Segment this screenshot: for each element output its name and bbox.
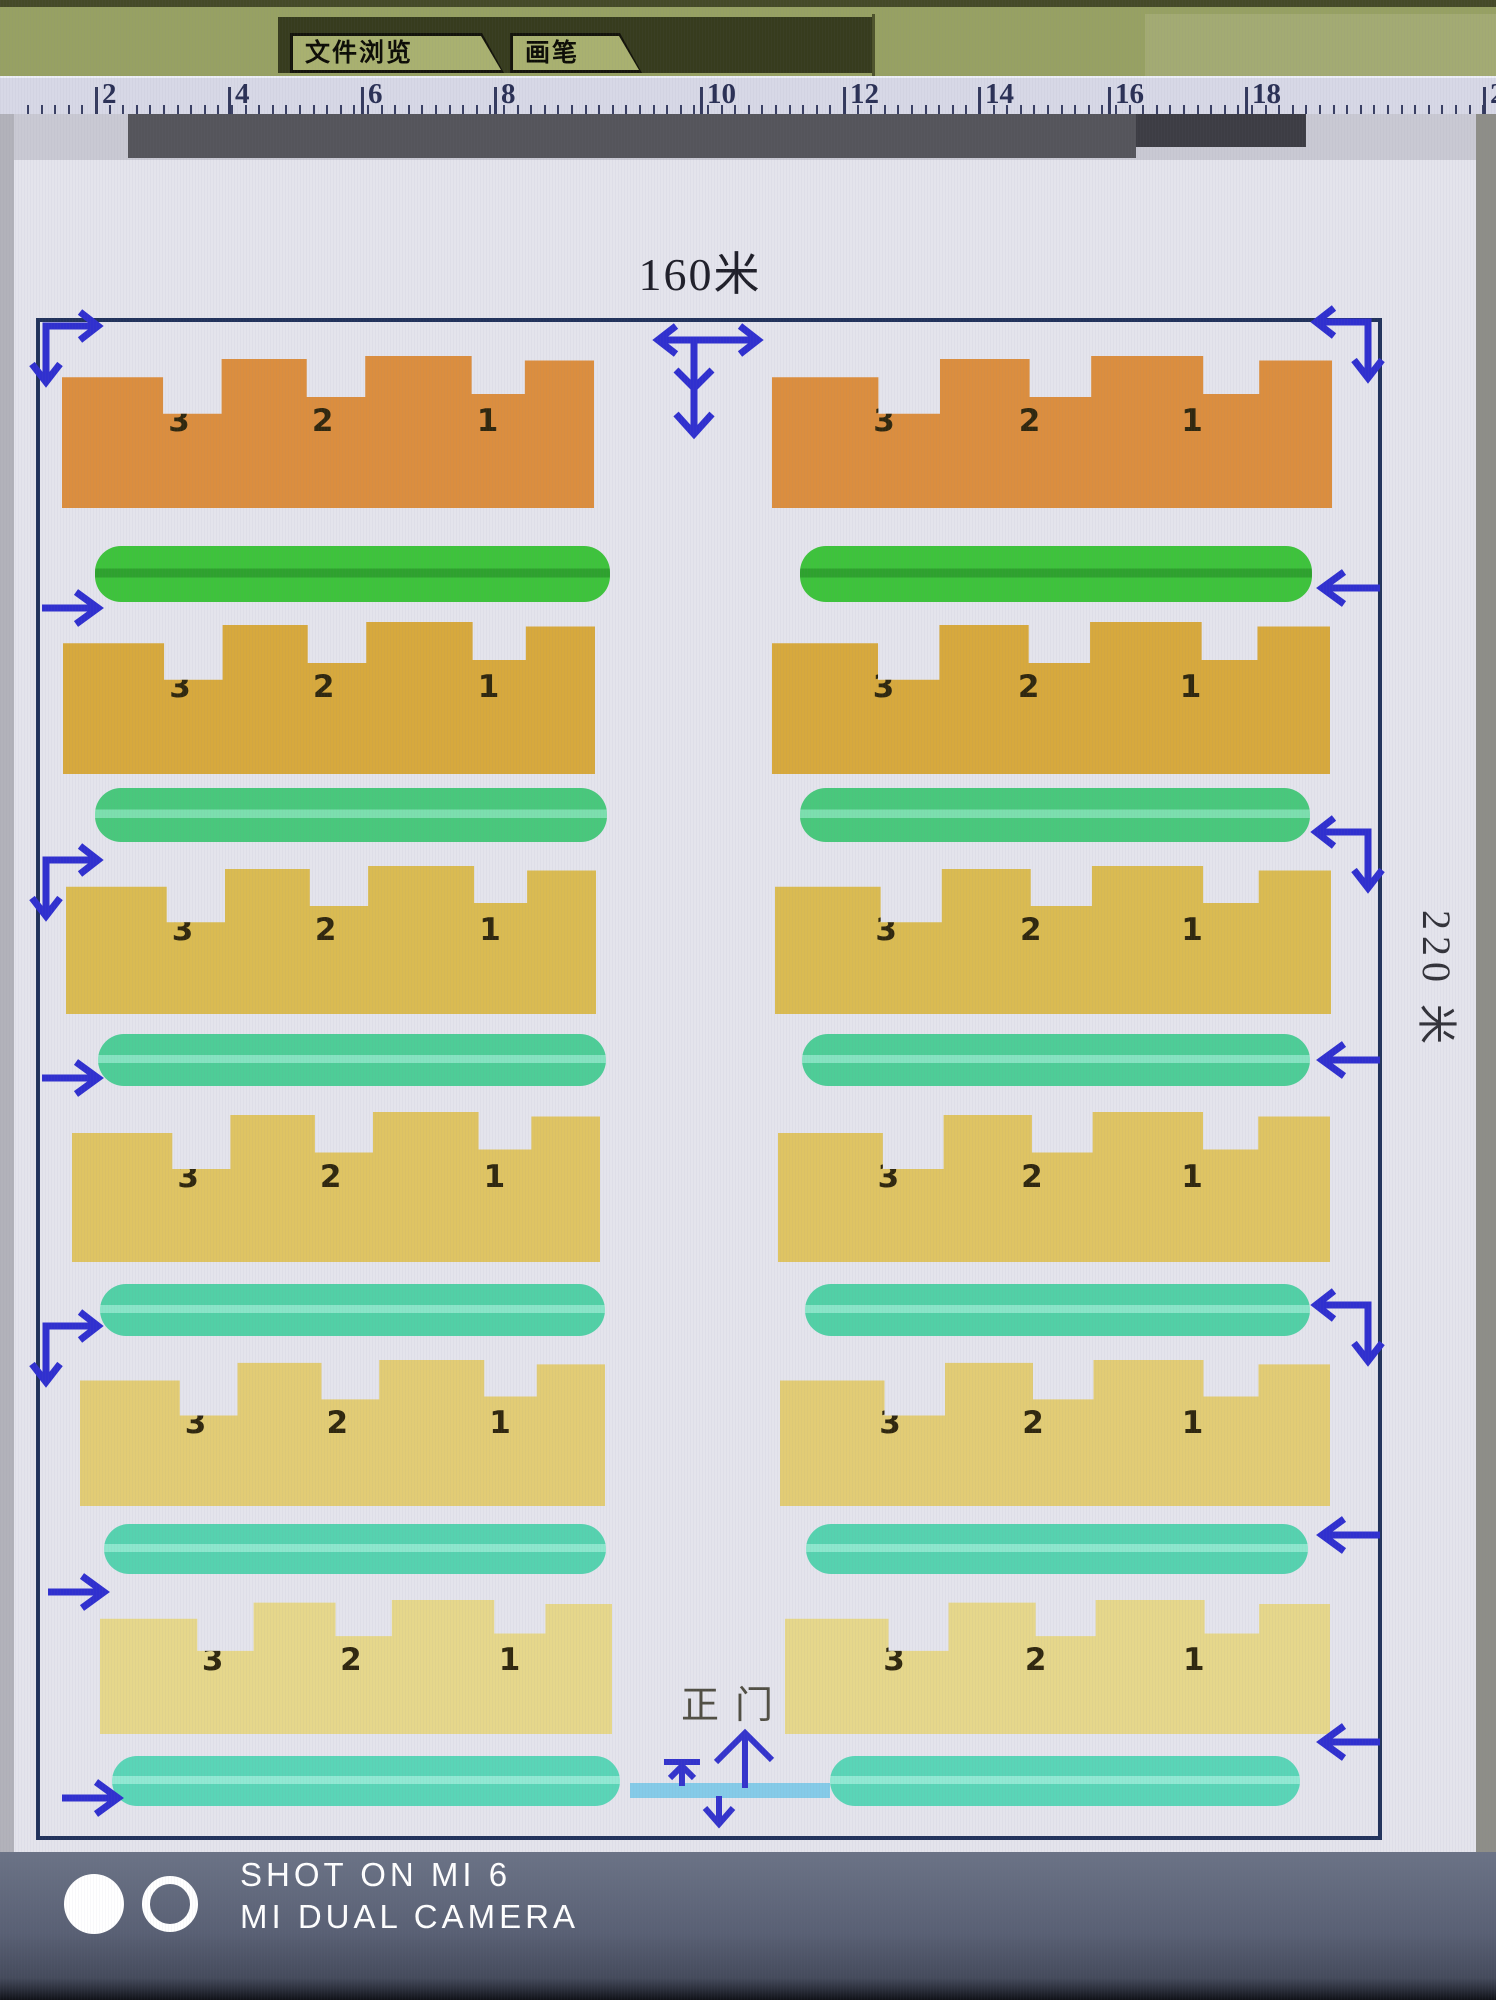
ruler-tick <box>421 105 423 114</box>
unit-number: 2 <box>1021 1159 1043 1195</box>
ruler-tick <box>925 105 927 114</box>
unit-number: 2 <box>312 403 334 439</box>
ruler-tick <box>408 105 410 114</box>
ruler-major-tick <box>1108 87 1111 114</box>
ruler-tick <box>190 105 192 114</box>
toolbar-divider <box>872 14 875 83</box>
ruler-tick <box>1428 105 1430 114</box>
ruler-tick <box>1414 105 1416 114</box>
unit-number: 2 <box>326 1405 348 1441</box>
unit-number: 1 <box>489 1405 511 1441</box>
ruler-tick <box>163 105 165 114</box>
unit-number: 2 <box>313 669 335 705</box>
ruler-tick <box>54 105 56 114</box>
ruler-tick <box>299 105 301 114</box>
canvas-shadow-band <box>128 114 1136 158</box>
ruler-tick <box>1224 105 1226 114</box>
ruler-tick <box>1210 105 1212 114</box>
ruler-tick <box>1469 105 1471 114</box>
ruler-label: 18 <box>1252 78 1281 111</box>
green-belt-row-3-left <box>98 1034 606 1086</box>
green-belt-row-1-left <box>95 546 610 602</box>
ruler-tick <box>1319 105 1321 114</box>
ruler-tick <box>571 105 573 114</box>
ruler-tick <box>1183 105 1185 114</box>
unit-number: 1 <box>1180 669 1202 705</box>
unit-number: 1 <box>1181 1159 1203 1195</box>
unit-number: 1 <box>1181 403 1203 439</box>
ruler-tick <box>761 105 763 114</box>
green-belt-row-4-right <box>805 1284 1310 1336</box>
ruler-tick <box>1387 105 1389 114</box>
ruler-tick <box>1156 105 1158 114</box>
ruler-major-tick <box>843 87 846 114</box>
ruler-tick <box>639 105 641 114</box>
unit-number: 1 <box>499 1642 521 1678</box>
ruler-tick <box>1088 105 1090 114</box>
ruler-label: 16 <box>1115 78 1144 111</box>
watermark-ring-icon <box>142 1876 198 1932</box>
unit-number: 2 <box>1020 912 1042 948</box>
ruler-tick <box>1033 105 1035 114</box>
unit-number: 1 <box>484 1159 506 1195</box>
width-dimension-label: 160米 <box>560 238 840 304</box>
ruler-tick <box>816 105 818 114</box>
ruler-tick <box>449 105 451 114</box>
ruler-tick <box>666 105 668 114</box>
ruler-tick <box>285 105 287 114</box>
ruler-tick <box>653 105 655 114</box>
ruler-label: 2 <box>1490 78 1496 111</box>
ruler-major-tick <box>978 87 981 114</box>
ruler-tick <box>965 105 967 114</box>
ruler-major-tick <box>494 87 497 114</box>
unit-number: 1 <box>478 669 500 705</box>
ruler-label: 12 <box>850 78 879 111</box>
ruler-tick <box>217 105 219 114</box>
ruler-tick <box>41 105 43 114</box>
unit-number: 1 <box>479 912 501 948</box>
canvas-dark-block <box>1136 114 1306 147</box>
ruler-tick <box>1360 105 1362 114</box>
screen-left-edge <box>0 114 14 1852</box>
ruler-tick <box>1047 105 1049 114</box>
ruler-tick <box>177 105 179 114</box>
ruler-tick <box>1237 105 1239 114</box>
ruler-major-tick <box>1245 87 1248 114</box>
horizontal-ruler: 246810121416182 <box>0 76 1496 114</box>
ruler-tick <box>680 105 682 114</box>
ruler-tick <box>693 105 695 114</box>
green-belt-row-4-left <box>100 1284 605 1336</box>
ruler-tick <box>489 105 491 114</box>
unit-number: 2 <box>1019 403 1041 439</box>
ruler-tick <box>340 105 342 114</box>
toolbar: 文件浏览 画笔 <box>0 0 1496 76</box>
green-belt-row-3-right <box>802 1034 1310 1086</box>
ruler-tick <box>27 105 29 114</box>
ruler-tick <box>1305 105 1307 114</box>
green-belt-row-2-left <box>95 788 607 842</box>
ruler-major-tick <box>700 87 703 114</box>
screen-photo: { "window": { "tabs": [ {"label": "文件浏览"… <box>0 0 1496 2000</box>
green-belt-row-5-left <box>104 1524 606 1574</box>
ruler-major-tick <box>1483 87 1486 114</box>
ruler-tick <box>353 105 355 114</box>
ruler-tick <box>1333 105 1335 114</box>
ruler-tick <box>1101 105 1103 114</box>
green-belt-row-1-right <box>800 546 1312 602</box>
ruler-tick <box>775 105 777 114</box>
ruler-tick <box>1401 105 1403 114</box>
ruler-tick <box>313 105 315 114</box>
ruler-tick <box>204 105 206 114</box>
ruler-tick <box>598 105 600 114</box>
ruler-tick <box>1455 105 1457 114</box>
ruler-tick <box>612 105 614 114</box>
ruler-tick <box>1020 105 1022 114</box>
unit-number: 2 <box>340 1642 362 1678</box>
watermark-line1: SHOT ON MI 6 <box>240 1856 511 1894</box>
ruler-label: 4 <box>235 78 250 111</box>
phone-photo-bezel: SHOT ON MI 6 MI DUAL CAMERA <box>0 1852 1496 2000</box>
ruler-tick <box>1197 105 1199 114</box>
unit-number: 2 <box>315 912 337 948</box>
ruler-tick <box>394 105 396 114</box>
ruler-tick <box>829 105 831 114</box>
ruler-tick <box>476 105 478 114</box>
ruler-tick <box>462 105 464 114</box>
ruler-major-tick <box>228 87 231 114</box>
ruler-tick <box>544 105 546 114</box>
ruler-label: 14 <box>985 78 1014 111</box>
ruler-tick <box>938 105 940 114</box>
unit-number: 1 <box>1183 1642 1205 1678</box>
ruler-tick <box>1074 105 1076 114</box>
ruler-tick <box>149 105 151 114</box>
ruler-tick <box>789 105 791 114</box>
unit-number: 2 <box>1022 1405 1044 1441</box>
ruler-tick <box>884 105 886 114</box>
height-dimension-label: 220 米 <box>1388 880 1492 1080</box>
ruler-tick <box>530 105 532 114</box>
ruler-tick <box>1169 105 1171 114</box>
unit-number: 1 <box>1181 912 1203 948</box>
ruler-tick <box>557 105 559 114</box>
ruler-tick <box>81 105 83 114</box>
ruler-tick <box>911 105 913 114</box>
ruler-tick <box>748 105 750 114</box>
ruler-tick <box>585 105 587 114</box>
ruler-tick <box>897 105 899 114</box>
ruler-major-tick <box>95 87 98 114</box>
ruler-tick <box>1373 105 1375 114</box>
watermark-line2: MI DUAL CAMERA <box>240 1898 579 1936</box>
gate-entry-exit-arrows-icon <box>600 1688 860 1848</box>
ruler-tick <box>952 105 954 114</box>
ruler-tick <box>1346 105 1348 114</box>
unit-number: 1 <box>477 403 499 439</box>
watermark-dot-icon <box>64 1874 124 1934</box>
ruler-tick <box>68 105 70 114</box>
ruler-tick <box>802 105 804 114</box>
unit-number: 1 <box>1182 1405 1204 1441</box>
unit-number: 2 <box>320 1159 342 1195</box>
green-belt-row-2-right <box>800 788 1310 842</box>
canvas-top-band <box>0 114 1496 160</box>
toolbar-right-panel <box>1145 14 1496 83</box>
ruler-tick <box>435 105 437 114</box>
ruler-tick <box>136 105 138 114</box>
ruler-tick <box>326 105 328 114</box>
green-belt-row-6-right <box>830 1756 1300 1806</box>
ruler-label: 6 <box>368 78 383 111</box>
green-belt-row-6-left <box>112 1756 620 1806</box>
ruler-tick <box>272 105 274 114</box>
ruler-tick <box>625 105 627 114</box>
ruler-label: 2 <box>102 78 117 111</box>
ruler-tick <box>517 105 519 114</box>
ruler-tick <box>122 105 124 114</box>
ruler-label: 8 <box>501 78 516 111</box>
ruler-label: 10 <box>707 78 736 111</box>
tab-file-browser[interactable]: 文件浏览 <box>290 33 504 73</box>
tab-brush[interactable]: 画笔 <box>510 33 642 73</box>
ruler-tick <box>1061 105 1063 114</box>
unit-number: 2 <box>1025 1642 1047 1678</box>
unit-number: 2 <box>1018 669 1040 705</box>
ruler-major-tick <box>361 87 364 114</box>
ruler-tick <box>258 105 260 114</box>
green-belt-row-5-right <box>806 1524 1308 1574</box>
ruler-tick <box>1441 105 1443 114</box>
ruler-tick <box>231 105 233 114</box>
ruler-tick <box>1292 105 1294 114</box>
